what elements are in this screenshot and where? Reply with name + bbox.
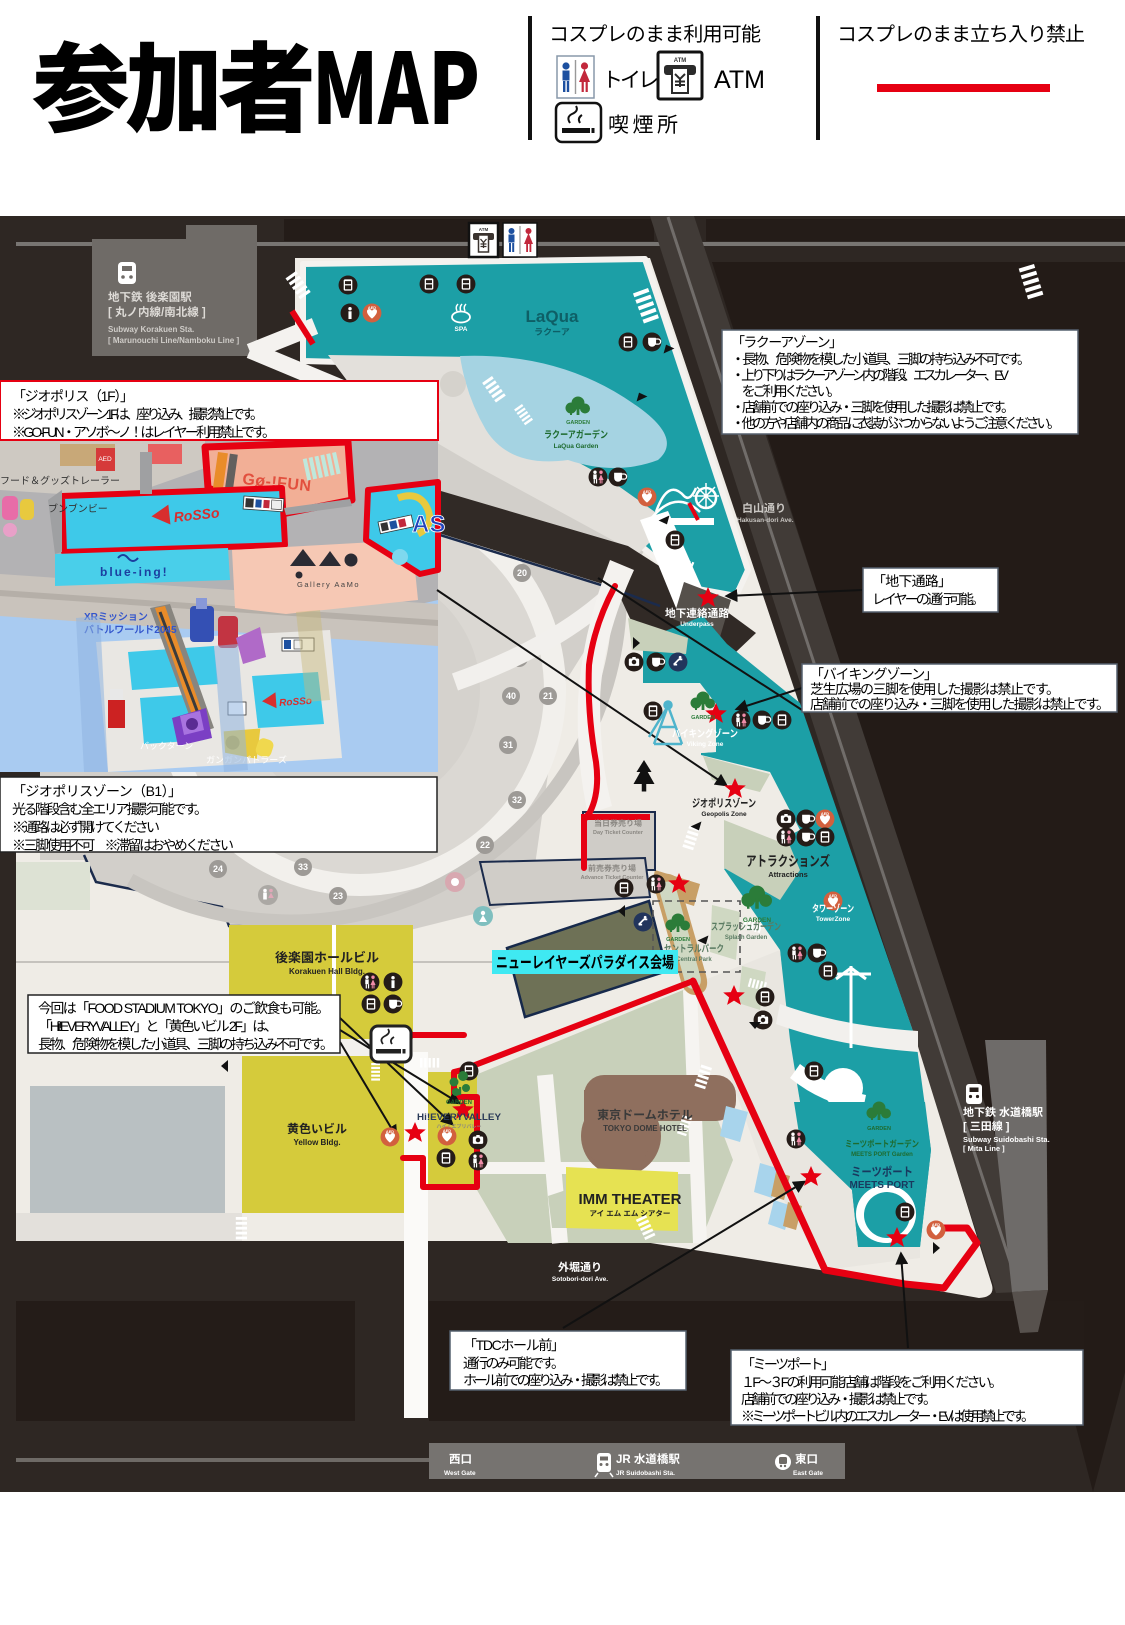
svg-text:GARDEN: GARDEN — [867, 1124, 891, 1132]
svg-text:[ Mita Line ]: [ Mita Line ] — [963, 1143, 1005, 1154]
svg-text:West Gate: West Gate — [444, 1467, 476, 1477]
svg-text:Hi!EVERYVALLEY: Hi!EVERYVALLEY — [417, 1109, 502, 1123]
svg-text:33: 33 — [298, 860, 308, 873]
svg-text:MAP: MAP — [312, 11, 480, 153]
svg-text:Viking Zone: Viking Zone — [687, 738, 724, 748]
svg-text:参加者: 参加者 — [32, 11, 312, 153]
svg-text:Splash Garden: Splash Garden — [725, 932, 768, 941]
svg-text:[ 丸ノ内線/南北線 ]: [ 丸ノ内線/南北線 ] — [108, 304, 206, 320]
svg-text:ATM: ATM — [714, 60, 765, 96]
svg-text:AED: AED — [98, 453, 112, 463]
svg-text:Attractions: Attractions — [768, 869, 808, 880]
svg-text:アイ エム エム シアター: アイ エム エム シアター — [590, 1208, 671, 1219]
svg-text:今回は「FOOD STADIUM TOKYO」のご飲食も可能: 今回は「FOOD STADIUM TOKYO」のご飲食も可能。 — [38, 998, 330, 1018]
svg-text:「ジオポリス（1F）」: 「ジオポリス（1F）」 — [12, 386, 134, 406]
svg-text:ATM: ATM — [479, 227, 489, 233]
svg-text:※通路は必ず開けてください: ※通路は必ず開けてください — [12, 817, 160, 837]
svg-text:GARDEN: GARDEN — [566, 418, 590, 426]
svg-text:Sotobori-dori Ave.: Sotobori-dori Ave. — [552, 1273, 608, 1283]
svg-text:LaQua: LaQua — [526, 302, 579, 327]
svg-text:[ Marunouchi Line/Namboku Line: [ Marunouchi Line/Namboku Line ] — [108, 335, 239, 346]
svg-text:西口: 西口 — [449, 1451, 472, 1467]
svg-text:コスプレのまま立ち入り禁止: コスプレのまま立ち入り禁止 — [837, 18, 1085, 47]
svg-text:GARDEN: GARDEN — [446, 1097, 472, 1106]
svg-text:GARDEN: GARDEN — [691, 713, 715, 721]
svg-text:[ 三田線 ]: [ 三田線 ] — [963, 1118, 1010, 1134]
svg-text:MEETS PORT: MEETS PORT — [849, 1176, 914, 1191]
svg-text:TOKYO DOME HOTEL: TOKYO DOME HOTEL — [603, 1123, 687, 1134]
svg-text:光る階段含む全エリア撮影可能です。: 光る階段含む全エリア撮影可能です。 — [12, 799, 208, 819]
svg-text:20: 20 — [517, 566, 527, 579]
svg-text:IMM THEATER: IMM THEATER — [578, 1188, 681, 1209]
svg-text:JR 水道橋駅: JR 水道橋駅 — [616, 1451, 680, 1467]
svg-text:地下鉄 後楽園駅: 地下鉄 後楽園駅 — [108, 289, 192, 305]
svg-text:トイレ: トイレ — [602, 64, 659, 94]
svg-text:黄色いビル: 黄色いビル — [287, 1120, 347, 1137]
svg-text:ハイ！エブリバレー: ハイ！エブリバレー — [437, 1123, 482, 1130]
svg-text:Subway Korakuen Sta.: Subway Korakuen Sta. — [108, 324, 194, 335]
svg-text:JR Suidobashi Sta.: JR Suidobashi Sta. — [616, 1467, 675, 1477]
svg-text:※ミーツポートビル内のエスカレーター・EVは使用禁止です。: ※ミーツポートビル内のエスカレーター・EVは使用禁止です。 — [741, 1406, 1035, 1426]
svg-text:ホール前での座り込み・撮影は禁止です。: ホール前での座り込み・撮影は禁止です。 — [463, 1370, 669, 1390]
svg-text:22: 22 — [480, 838, 490, 851]
svg-text:・他の方や店舗内の商品に衣装がぶつからないようご注意ください: ・他の方や店舗内の商品に衣装がぶつからないようご注意ください。 — [731, 413, 1061, 433]
svg-text:ニューレイヤーズパラダイス会場: ニューレイヤーズパラダイス会場 — [496, 949, 674, 973]
svg-text:コスプレのまま利用可能: コスプレのまま利用可能 — [549, 18, 761, 47]
svg-text:SPA: SPA — [455, 323, 468, 333]
svg-text:バックターン: バックターン — [140, 739, 193, 752]
svg-text:ATM: ATM — [674, 55, 687, 64]
svg-text:レイヤーの通行可能。: レイヤーの通行可能。 — [872, 589, 985, 609]
svg-text:「TDCホール前」: 「TDCホール前」 — [463, 1335, 565, 1355]
svg-text:23: 23 — [333, 889, 343, 902]
svg-text:40: 40 — [506, 689, 516, 702]
svg-text:「ミーツポート」: 「ミーツポート」 — [741, 1354, 835, 1374]
svg-text:Underpass: Underpass — [680, 618, 714, 628]
svg-text:フード＆グッズトレーラー: フード＆グッズトレーラー — [0, 472, 120, 487]
svg-text:Geopolis Zone: Geopolis Zone — [701, 808, 747, 818]
svg-text:※GO-FUN・アソボ～ノ！はレイヤー利用禁止です。: ※GO-FUN・アソボ～ノ！はレイヤー利用禁止です。 — [12, 422, 276, 442]
svg-text:東口: 東口 — [795, 1451, 818, 1467]
svg-text:21: 21 — [543, 689, 553, 702]
svg-text:ラクーア: ラクーア — [534, 325, 570, 338]
svg-text:Korakuen Hall Bldg.: Korakuen Hall Bldg. — [289, 966, 365, 977]
svg-text:アトラクションズ: アトラクションズ — [746, 851, 830, 871]
svg-text:LaQua Garden: LaQua Garden — [554, 440, 599, 450]
svg-text:東京ドームホテル: 東京ドームホテル — [597, 1106, 693, 1123]
svg-text:ブンブンビー: ブンブンビー — [48, 500, 108, 515]
svg-text:※三脚使用不可 ※滞留はおやめください: ※三脚使用不可 ※滞留はおやめください — [12, 835, 234, 855]
svg-text:「ジオポリスゾーン（B1）」: 「ジオポリスゾーン（B1）」 — [12, 781, 182, 801]
svg-text:喫煙所: 喫煙所 — [608, 109, 678, 139]
svg-text:長物、危険物を模した小道具、三脚の持ち込み不可です。: 長物、危険物を模した小道具、三脚の持ち込み不可です。 — [38, 1034, 334, 1054]
svg-text:「地下通路」: 「地下通路」 — [872, 571, 952, 591]
svg-text:後楽園ホールビル: 後楽園ホールビル — [275, 947, 379, 966]
svg-text:「Hi!EVERYVALLEY」と「黄色いビル 2F」は、: 「Hi!EVERYVALLEY」と「黄色いビル 2F」は、 — [38, 1016, 278, 1036]
svg-text:24: 24 — [213, 862, 223, 875]
svg-text:East Gate: East Gate — [793, 1467, 823, 1477]
svg-text:Central Park: Central Park — [676, 954, 712, 963]
svg-text:スプラッシュガーデン: スプラッシュガーデン — [711, 918, 781, 933]
svg-text:AS: AS — [412, 504, 445, 539]
svg-text:ラクーアガーデン: ラクーアガーデン — [544, 426, 608, 441]
svg-text:31: 31 — [503, 738, 513, 751]
svg-text:Yellow Bldg.: Yellow Bldg. — [293, 1137, 340, 1148]
svg-text:blue-ing!: blue-ing! — [100, 563, 169, 580]
svg-text:Gallery AaMo: Gallery AaMo — [297, 579, 360, 590]
svg-text:Day Ticket Counter: Day Ticket Counter — [593, 828, 644, 836]
svg-text:店舗前での座り込み・三脚を使用した撮影は禁止です。: 店舗前での座り込み・三脚を使用した撮影は禁止です。 — [810, 694, 1110, 714]
svg-text:Hakusan-dori Ave.: Hakusan-dori Ave. — [737, 514, 794, 524]
svg-text:TowerZone: TowerZone — [816, 913, 851, 923]
svg-text:32: 32 — [512, 793, 522, 806]
svg-text:Advance Ticket Counter: Advance Ticket Counter — [581, 873, 645, 881]
svg-text:MEETS PORT Garden: MEETS PORT Garden — [851, 1149, 913, 1158]
svg-text:※ジオポリスゾーン1Fは、座り込み、撮影禁止です。: ※ジオポリスゾーン1Fは、座り込み、撮影禁止です。 — [12, 404, 264, 424]
